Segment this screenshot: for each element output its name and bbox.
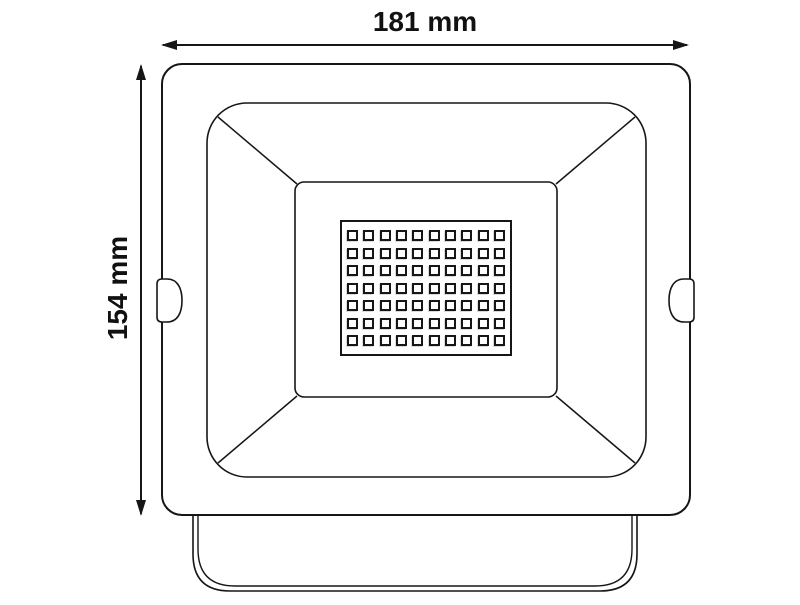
- led-chip: [494, 283, 505, 294]
- led-chip: [380, 335, 391, 346]
- led-chip: [363, 283, 374, 294]
- led-chip: [396, 283, 407, 294]
- arrowhead-up-icon: [136, 64, 146, 80]
- led-chip: [494, 335, 505, 346]
- led-chip: [445, 335, 456, 346]
- width-dimension: 181 mm: [161, 6, 689, 50]
- width-dimension-label: 181 mm: [373, 6, 477, 37]
- led-chip: [347, 265, 358, 276]
- led-chip: [461, 300, 472, 311]
- led-chip: [347, 283, 358, 294]
- led-chip: [494, 248, 505, 259]
- led-chip: [461, 248, 472, 259]
- led-chip: [347, 318, 358, 329]
- led-chip: [363, 265, 374, 276]
- led-chip: [478, 265, 489, 276]
- led-chip: [363, 230, 374, 241]
- led-chip: [347, 300, 358, 311]
- mounting-bracket-inner-line: [198, 513, 632, 586]
- led-chip: [396, 265, 407, 276]
- mounting-bracket-outer-line: [193, 513, 637, 591]
- arrowhead-right-icon: [673, 40, 689, 50]
- led-chip: [461, 230, 472, 241]
- led-chip: [478, 283, 489, 294]
- height-dimension: 154 mm: [102, 64, 146, 516]
- led-chip: [412, 248, 423, 259]
- led-chip: [494, 265, 505, 276]
- arrowhead-down-icon: [136, 500, 146, 516]
- led-chip: [445, 300, 456, 311]
- led-chip: [429, 318, 440, 329]
- led-chip: [363, 300, 374, 311]
- led-chip: [478, 318, 489, 329]
- led-chip: [347, 248, 358, 259]
- led-chip: [412, 300, 423, 311]
- led-chip: [380, 318, 391, 329]
- led-chip: [478, 230, 489, 241]
- led-chip: [380, 265, 391, 276]
- led-grid: [343, 223, 509, 353]
- led-chip: [380, 248, 391, 259]
- led-chip: [380, 283, 391, 294]
- side-tab-right: [669, 279, 694, 322]
- led-chip: [363, 248, 374, 259]
- led-chip: [445, 248, 456, 259]
- led-chip: [445, 318, 456, 329]
- led-chip: [478, 300, 489, 311]
- led-chip: [396, 318, 407, 329]
- led-chip: [412, 265, 423, 276]
- led-chip: [412, 283, 423, 294]
- led-chip: [429, 335, 440, 346]
- led-chip: [461, 335, 472, 346]
- arrowhead-left-icon: [161, 40, 177, 50]
- side-tab-left: [157, 279, 182, 322]
- floodlight-dimension-diagram: 181 mm 154 mm: [0, 0, 800, 600]
- led-chip: [478, 335, 489, 346]
- mounting-bracket: [193, 513, 637, 591]
- height-dimension-label: 154 mm: [102, 236, 133, 340]
- led-chip: [429, 248, 440, 259]
- led-chip: [429, 265, 440, 276]
- led-chip: [396, 230, 407, 241]
- led-chip: [396, 248, 407, 259]
- led-chip: [412, 318, 423, 329]
- led-chip: [494, 300, 505, 311]
- led-chip: [396, 335, 407, 346]
- led-chip: [396, 300, 407, 311]
- led-chip: [347, 335, 358, 346]
- led-chip: [429, 230, 440, 241]
- led-chip: [494, 318, 505, 329]
- led-chip: [412, 230, 423, 241]
- led-chip: [478, 248, 489, 259]
- led-chip: [380, 230, 391, 241]
- led-chip: [461, 318, 472, 329]
- led-chip: [380, 300, 391, 311]
- led-chip: [445, 283, 456, 294]
- led-chip: [429, 300, 440, 311]
- led-chip: [429, 283, 440, 294]
- led-chip: [445, 230, 456, 241]
- led-chip: [412, 335, 423, 346]
- led-chip: [363, 318, 374, 329]
- led-chip: [461, 265, 472, 276]
- led-chip: [347, 230, 358, 241]
- led-chip: [461, 283, 472, 294]
- led-chip: [445, 265, 456, 276]
- led-chip: [494, 230, 505, 241]
- led-chip: [363, 335, 374, 346]
